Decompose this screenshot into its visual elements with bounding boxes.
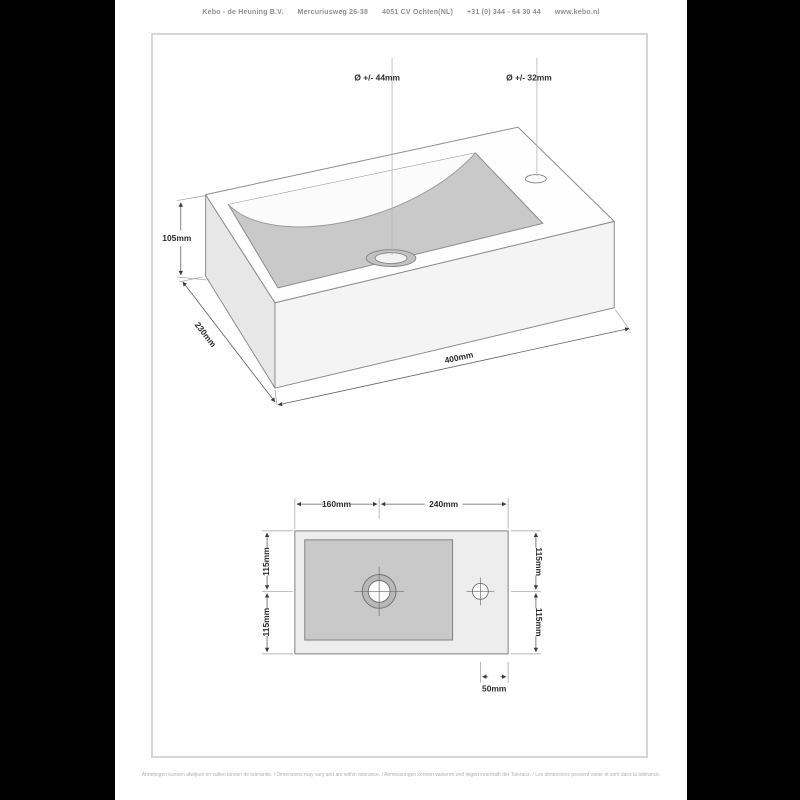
drain-diameter-label: Ø +/- 44mm <box>354 73 400 83</box>
plan-left-dimensions: 115mm 115mm <box>261 531 293 654</box>
left-depth-top-label: 115mm <box>261 547 271 576</box>
plan-top-dimensions: 160mm 240mm <box>295 498 508 529</box>
drain-hole-icon <box>366 250 416 267</box>
right-black-bar <box>687 0 800 800</box>
company-name: Kebo - de Heuning B.V. <box>202 9 283 16</box>
company-city: 4051 CV Ochten(NL) <box>382 9 453 16</box>
left-black-bar <box>0 0 115 800</box>
basin-width-label: 160mm <box>322 499 351 509</box>
height-dimension: 105mm <box>162 196 206 280</box>
plan-faucet-offset-dimension: 50mm <box>480 662 508 694</box>
isometric-view: Ø +/- 44mm Ø +/- 32mm 105mm 230mm <box>162 58 630 405</box>
datasheet-page: Kebo - de Heuning B.V. Mercuriusweg 26-3… <box>115 0 687 800</box>
depth-label: 230mm <box>193 320 219 349</box>
tolerance-disclaimer: Afmetingen kunnen afwijken en vallen bin… <box>115 772 687 778</box>
right-depth-bottom-label: 115mm <box>534 608 544 637</box>
plan-view: 160mm 240mm 115mm <box>261 498 544 693</box>
company-header: Kebo - de Heuning B.V. Mercuriusweg 26-3… <box>115 9 687 16</box>
faucet-diameter-label: Ø +/- 32mm <box>506 73 552 83</box>
height-label: 105mm <box>162 233 191 243</box>
company-phone: +31 (0) 344 - 64 30 44 <box>467 9 541 16</box>
drawing-frame: Ø +/- 44mm Ø +/- 32mm 105mm 230mm <box>151 33 648 758</box>
plan-right-dimensions: 115mm 115mm <box>511 531 544 654</box>
faucet-hole-icon <box>525 175 546 183</box>
company-website: www.kebo.nl <box>555 9 600 16</box>
faucet-offset-label: 50mm <box>482 684 506 694</box>
company-address: Mercuriusweg 26-38 <box>298 9 369 16</box>
tap-side-width-label: 240mm <box>429 499 458 509</box>
left-depth-bottom-label: 115mm <box>261 608 271 637</box>
right-depth-top-label: 115mm <box>534 547 544 576</box>
technical-drawing: Ø +/- 44mm Ø +/- 32mm 105mm 230mm <box>153 35 646 756</box>
